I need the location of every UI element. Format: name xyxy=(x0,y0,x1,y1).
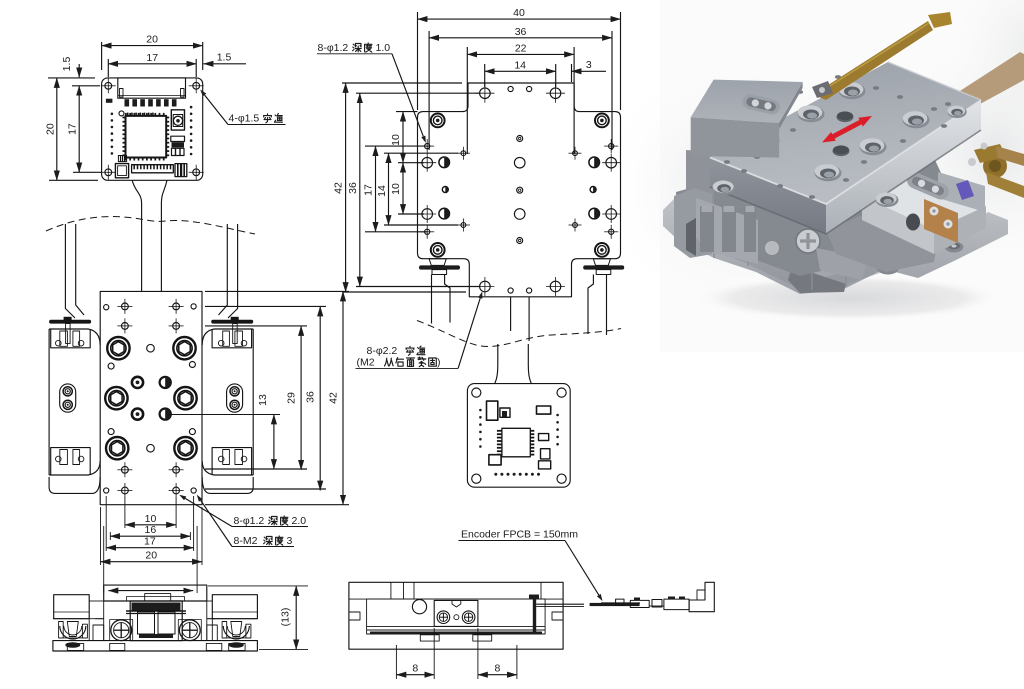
svg-text:10: 10 xyxy=(145,513,157,525)
svg-text:22: 22 xyxy=(515,42,527,54)
svg-text:20: 20 xyxy=(146,34,158,46)
svg-text:(13): (13) xyxy=(280,608,292,627)
svg-text:8: 8 xyxy=(494,663,500,675)
svg-text:17: 17 xyxy=(363,184,375,196)
svg-text:8-φ1.2: 8-φ1.2 xyxy=(234,515,265,527)
svg-text:Encoder FPCB = 150mm: Encoder FPCB = 150mm xyxy=(461,529,578,541)
svg-text:20: 20 xyxy=(145,550,157,562)
svg-text:36: 36 xyxy=(515,26,527,38)
svg-text:8-φ1.2: 8-φ1.2 xyxy=(318,42,349,54)
svg-text:(M2: (M2 xyxy=(357,357,375,369)
svg-text:13: 13 xyxy=(257,394,269,406)
svg-text:29: 29 xyxy=(286,392,298,404)
svg-text:20: 20 xyxy=(44,123,56,135)
svg-text:36: 36 xyxy=(305,391,317,403)
svg-text:8-φ2.2: 8-φ2.2 xyxy=(367,345,398,357)
svg-text:17: 17 xyxy=(146,52,158,64)
svg-text:3: 3 xyxy=(287,535,293,547)
svg-text:10: 10 xyxy=(390,183,402,195)
svg-text:14: 14 xyxy=(376,185,388,197)
svg-text:42: 42 xyxy=(328,392,340,404)
svg-text:1.5: 1.5 xyxy=(61,57,73,72)
svg-text:10: 10 xyxy=(390,134,402,146)
svg-text:): ) xyxy=(437,357,441,369)
svg-text:8-M2: 8-M2 xyxy=(234,535,258,547)
svg-text:2.0: 2.0 xyxy=(292,515,307,527)
svg-text:16: 16 xyxy=(145,524,157,536)
svg-text:1.0: 1.0 xyxy=(376,42,391,54)
svg-text:36: 36 xyxy=(347,182,359,194)
svg-text:3: 3 xyxy=(586,59,592,71)
svg-text:14: 14 xyxy=(514,59,526,71)
svg-text:8: 8 xyxy=(412,663,418,675)
svg-text:42: 42 xyxy=(333,182,345,194)
svg-text:17: 17 xyxy=(67,123,79,135)
svg-text:17: 17 xyxy=(144,536,156,548)
svg-text:1.5: 1.5 xyxy=(217,52,232,64)
svg-text:40: 40 xyxy=(513,7,525,19)
svg-text:4-φ1.5: 4-φ1.5 xyxy=(229,113,260,125)
